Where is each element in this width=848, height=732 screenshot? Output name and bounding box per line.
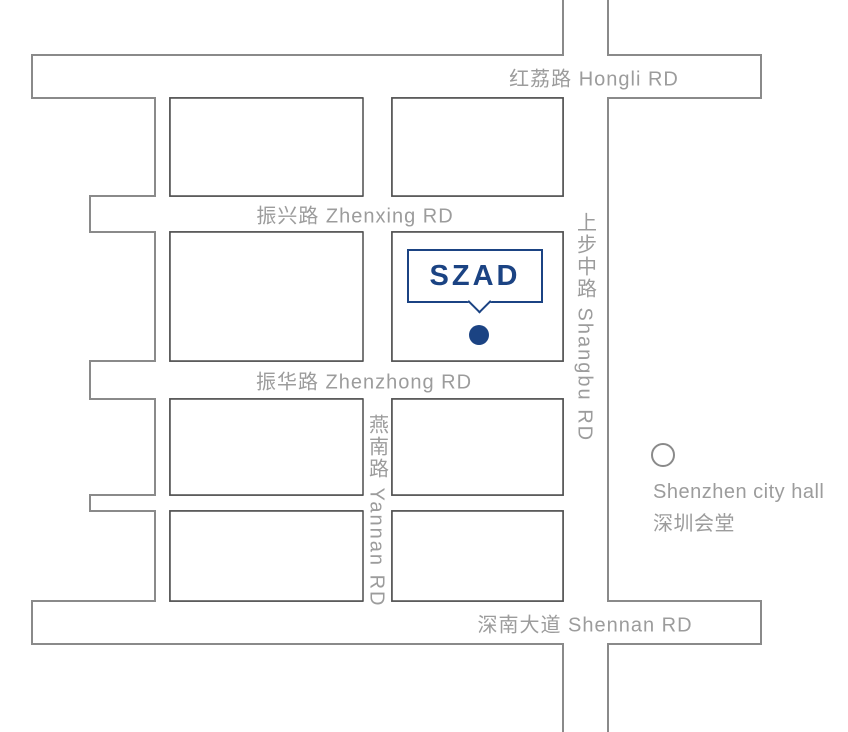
szad-location-map: 红荔路 Hongli RD 振兴路 Zhenxing RD 振华路 Zhenzh… <box>0 0 848 732</box>
road-label-zhenzhong: 振华路 Zhenzhong RD <box>256 366 472 395</box>
road-label-shennan: 深南大道 Shennan RD <box>477 609 692 638</box>
szad-marker-label: SZAD <box>430 260 521 293</box>
block-row4-left <box>170 511 363 601</box>
block-row1-left <box>170 98 363 196</box>
szad-marker-bubble: SZAD <box>407 249 543 303</box>
block-row1-right <box>392 98 563 196</box>
block-row3-left <box>170 399 363 495</box>
city-hall-name-en: Shenzhen city hall <box>653 476 824 508</box>
city-hall-annotation: Shenzhen city hall 深圳会堂 <box>653 476 824 540</box>
block-row2-left <box>170 232 363 361</box>
road-label-zhenxing: 振兴路 Zhenxing RD <box>256 200 453 229</box>
road-label-hongli: 红荔路 Hongli RD <box>509 63 679 92</box>
block-row3-right <box>392 399 563 495</box>
block-row4-right <box>392 511 563 601</box>
road-label-yannan: 燕南路 Yannan RD <box>363 414 392 607</box>
szad-location-dot <box>469 325 489 345</box>
road-label-shangbu: 上步中路 Shangbu RD <box>571 212 600 442</box>
city-hall-circle-icon <box>652 444 674 466</box>
city-hall-name-cn: 深圳会堂 <box>653 508 824 540</box>
